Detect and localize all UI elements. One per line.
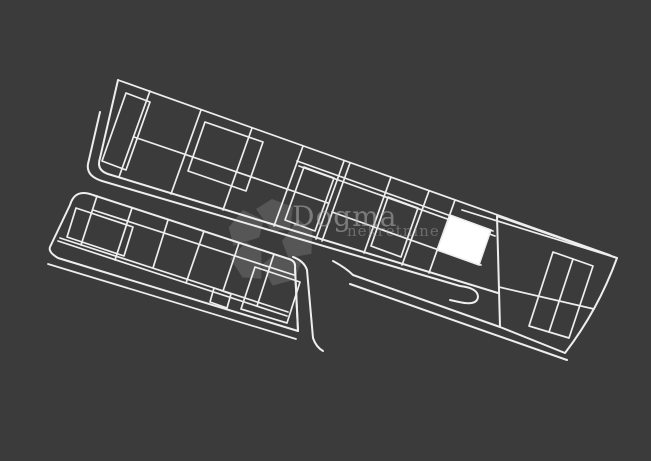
plan-line: [81, 196, 97, 245]
plan-line: [119, 91, 150, 177]
watermark-subtitle: nekretnine: [347, 222, 440, 240]
plan-line: [115, 208, 132, 260]
highlighted-parcel: [437, 215, 491, 265]
parcel-outline: [67, 208, 133, 256]
plan-line: [134, 137, 328, 203]
plan-outline-path: [333, 261, 500, 327]
site-plan: Dogma nekretnine: [0, 0, 651, 461]
plan-outline-path: [497, 216, 617, 353]
plan-canvas: Dogma nekretnine: [0, 0, 651, 461]
plan-line: [153, 220, 168, 268]
plan-line: [186, 231, 204, 283]
plan-line: [549, 259, 573, 332]
plan-outline-path: [99, 80, 498, 293]
parcel-outline: [188, 122, 263, 191]
